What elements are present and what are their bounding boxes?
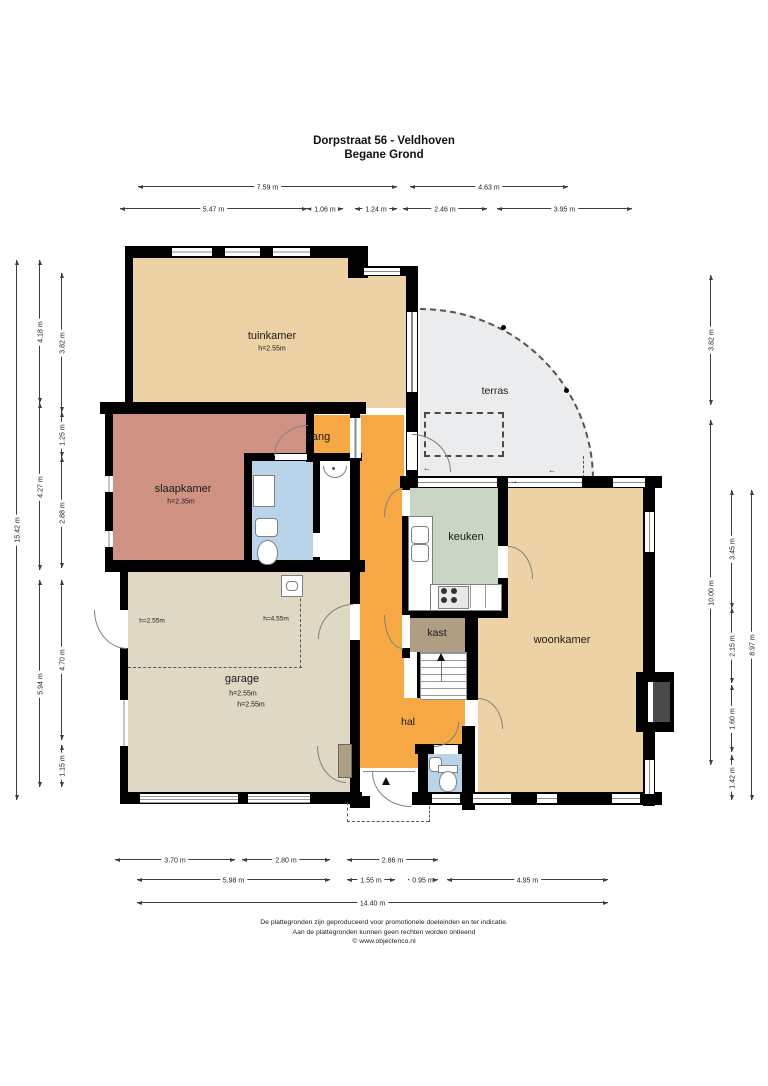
window (473, 794, 511, 803)
dimension-2.15m: 2.15 m (731, 608, 732, 683)
sliding-door (418, 478, 497, 487)
dimension-4.27m: 4.27 m (39, 403, 40, 570)
door-arc (372, 772, 411, 807)
dimension-15.42m: 15.42 m (16, 260, 17, 800)
bathroom-sink (255, 518, 278, 537)
window (537, 794, 557, 803)
dimension-1.06m: 1.06 m (307, 208, 343, 209)
room-woonkamer (508, 486, 643, 618)
window (364, 268, 400, 275)
post-dot (501, 325, 506, 330)
room-label-slaapkamer: slaapkamer (155, 483, 212, 495)
window (407, 312, 417, 392)
dimension-4.18m: 4.18 m (39, 260, 40, 403)
dimension-1.42m: 1.42 m (731, 755, 732, 800)
stove-burner (441, 597, 447, 603)
porch-dash (347, 821, 429, 822)
door-opening (313, 533, 320, 557)
door-arc (94, 610, 127, 649)
dimension-7.59m: 7.59 m (138, 186, 397, 187)
dimension-1.60m: 1.60 m (731, 685, 732, 752)
dimension-10.00m: 10.00 m (710, 420, 711, 765)
stove-burner (441, 588, 447, 594)
door-opening (402, 490, 410, 516)
room-label-tuinkamer: tuinkamer (248, 330, 296, 342)
dimension-2.80m: 2.80 m (242, 859, 330, 860)
room-label-terras: terras (482, 385, 509, 397)
porch-dash (347, 802, 348, 822)
window (273, 248, 310, 256)
window (432, 794, 460, 803)
post-dot (564, 388, 569, 393)
window (105, 531, 113, 547)
dimension-3.95m: 3.95 m (497, 208, 632, 209)
dimension-1.15m: 1.15 m (61, 745, 62, 787)
room-tuinkamer (358, 274, 407, 408)
zone-height-garage-left: h=2.55m (139, 618, 164, 625)
dimension-1.25m: 1.25 m (61, 412, 62, 457)
shower-head-dot (332, 467, 335, 470)
wall (244, 453, 252, 562)
wall (105, 560, 365, 572)
room-label-gang: gang (306, 431, 330, 443)
footer-disclaimer: De plattegronden zijn geproduceerd voor … (0, 918, 768, 947)
disclaimer-line: De plattegronden zijn geproduceerd voor … (0, 918, 768, 928)
dimension-1.55m: 1.55 m (347, 879, 395, 880)
terras-boundary-dash (583, 456, 584, 478)
height-zone-dash (128, 667, 302, 668)
entrance-arrow (382, 777, 390, 785)
window (120, 700, 128, 746)
stove-burner (451, 588, 457, 594)
door-opening (402, 615, 410, 648)
dimension-14.40m: 14.40 m (137, 902, 608, 903)
slide-arrow: ← (423, 464, 431, 473)
dimension-5.98m: 5.98 m (137, 879, 330, 880)
copyright-line: © www.objectenco.nl (0, 937, 768, 947)
wall (350, 796, 370, 808)
room-hal (360, 415, 404, 768)
toilet-bowl (439, 771, 457, 792)
room-label-keuken: keuken (448, 531, 483, 543)
dimension-2.86m: 2.86 m (347, 859, 438, 860)
dimension-0.95m: 0.95 m (408, 879, 438, 880)
room-height-garage-1: h=2.55m (229, 691, 256, 698)
dimension-8.97m: 8.97 m (751, 490, 752, 800)
dimension-4.95m: 4.95 m (447, 879, 608, 880)
stove-burner (451, 597, 457, 603)
wall (120, 560, 128, 804)
disclaimer-line: Aan de plattegronden kunnen geen rechten… (0, 928, 768, 938)
garage-door (140, 794, 310, 803)
dimension-5.94m: 5.94 m (39, 580, 40, 787)
bathroom-cabinet (253, 475, 275, 507)
window (612, 794, 640, 803)
window (645, 760, 654, 794)
wall (125, 246, 133, 412)
room-height-garage-2: h=2.55m (237, 702, 264, 709)
wall (402, 610, 508, 618)
stairs-arrow-stem (441, 661, 442, 681)
dimension-2.46m: 2.46 m (403, 208, 487, 209)
window (105, 476, 113, 492)
fireplace-insert (653, 682, 670, 722)
dimension-3.82m: 3.82 m (61, 273, 62, 412)
room-height-tuinkamer: h=2.55m (258, 346, 285, 353)
room-label-garage: garage (225, 673, 259, 685)
floorplan-page: Dorpstraat 56 - Veldhoven Begane Grond (0, 0, 768, 1086)
room-label-kast: kast (427, 627, 446, 639)
dimension-2.88m: 2.88 m (61, 457, 62, 568)
room-label-hal: hal (401, 716, 415, 728)
dimension-1.24m: 1.24 m (355, 208, 397, 209)
gang-door (350, 418, 361, 458)
dimension-4.63m: 4.63 m (410, 186, 568, 187)
wall (100, 402, 366, 414)
washing-machine-drum (286, 581, 298, 591)
dimension-3.82m: 3.82 m (710, 275, 711, 405)
window (172, 248, 212, 256)
door-opening (498, 546, 508, 578)
zone-height-garage-right: h=4.55m (263, 616, 288, 623)
counter-divider (470, 585, 471, 608)
stairs-up-arrow (437, 653, 445, 661)
room-label-woonkamer: woonkamer (534, 634, 591, 646)
kitchen-sink (411, 544, 429, 562)
window (645, 512, 654, 552)
dimension-3.45m: 3.45 m (731, 490, 732, 608)
window (613, 478, 645, 487)
dimension-5.47m: 5.47 m (120, 208, 307, 209)
sliding-door (508, 478, 582, 487)
bathroom-toilet (257, 540, 278, 565)
slide-arrow: ← (548, 466, 556, 475)
wall (238, 792, 248, 804)
dimension-3.70m: 3.70 m (115, 859, 235, 860)
dimension-4.70m: 4.70 m (61, 580, 62, 740)
porch-dash (429, 806, 430, 822)
room-height-slaapkamer: h=2.35m (167, 499, 194, 506)
counter-divider (485, 585, 486, 608)
window (225, 248, 260, 256)
slide-arrow: → (510, 477, 518, 486)
kitchen-sink (411, 526, 429, 544)
